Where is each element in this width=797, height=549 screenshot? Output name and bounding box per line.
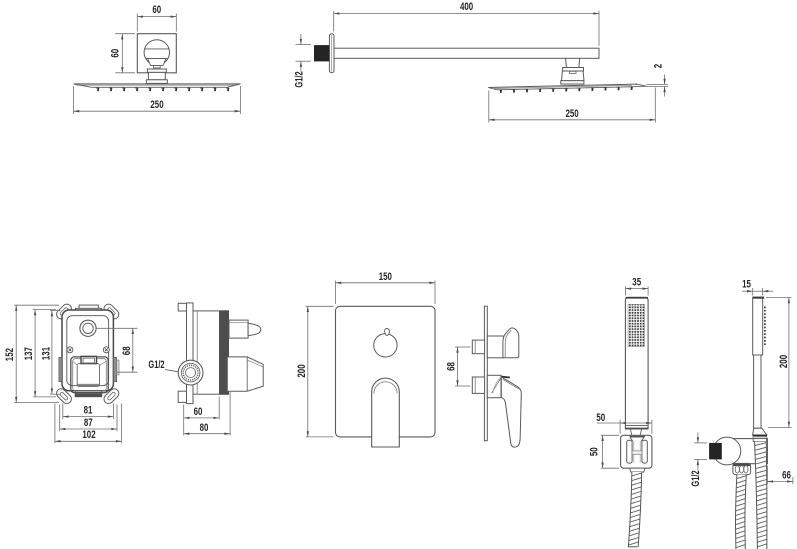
svg-text:250: 250: [150, 99, 163, 111]
svg-text:50: 50: [588, 447, 600, 456]
svg-text:G1/2: G1/2: [294, 71, 306, 87]
svg-text:60: 60: [194, 406, 203, 418]
svg-text:250: 250: [566, 108, 579, 120]
svg-text:87: 87: [84, 417, 93, 429]
svg-text:152: 152: [4, 348, 16, 361]
svg-text:102: 102: [82, 429, 95, 441]
svg-text:150: 150: [379, 271, 392, 283]
svg-text:80: 80: [200, 422, 209, 434]
svg-text:2: 2: [653, 64, 665, 68]
svg-text:200: 200: [778, 355, 790, 368]
svg-text:66: 66: [782, 469, 791, 481]
svg-text:60: 60: [152, 4, 161, 16]
svg-text:137: 137: [23, 347, 35, 360]
svg-text:G1/2: G1/2: [690, 470, 702, 486]
svg-text:400: 400: [460, 1, 473, 13]
svg-text:68: 68: [445, 362, 457, 371]
svg-text:81: 81: [84, 404, 93, 416]
svg-text:200: 200: [296, 364, 308, 377]
svg-text:35: 35: [632, 277, 641, 289]
svg-text:131: 131: [41, 347, 53, 360]
svg-text:15: 15: [742, 279, 751, 291]
svg-text:68: 68: [121, 346, 133, 355]
svg-text:60: 60: [109, 49, 121, 58]
svg-text:50: 50: [596, 412, 605, 424]
svg-text:G1/2: G1/2: [148, 359, 164, 371]
